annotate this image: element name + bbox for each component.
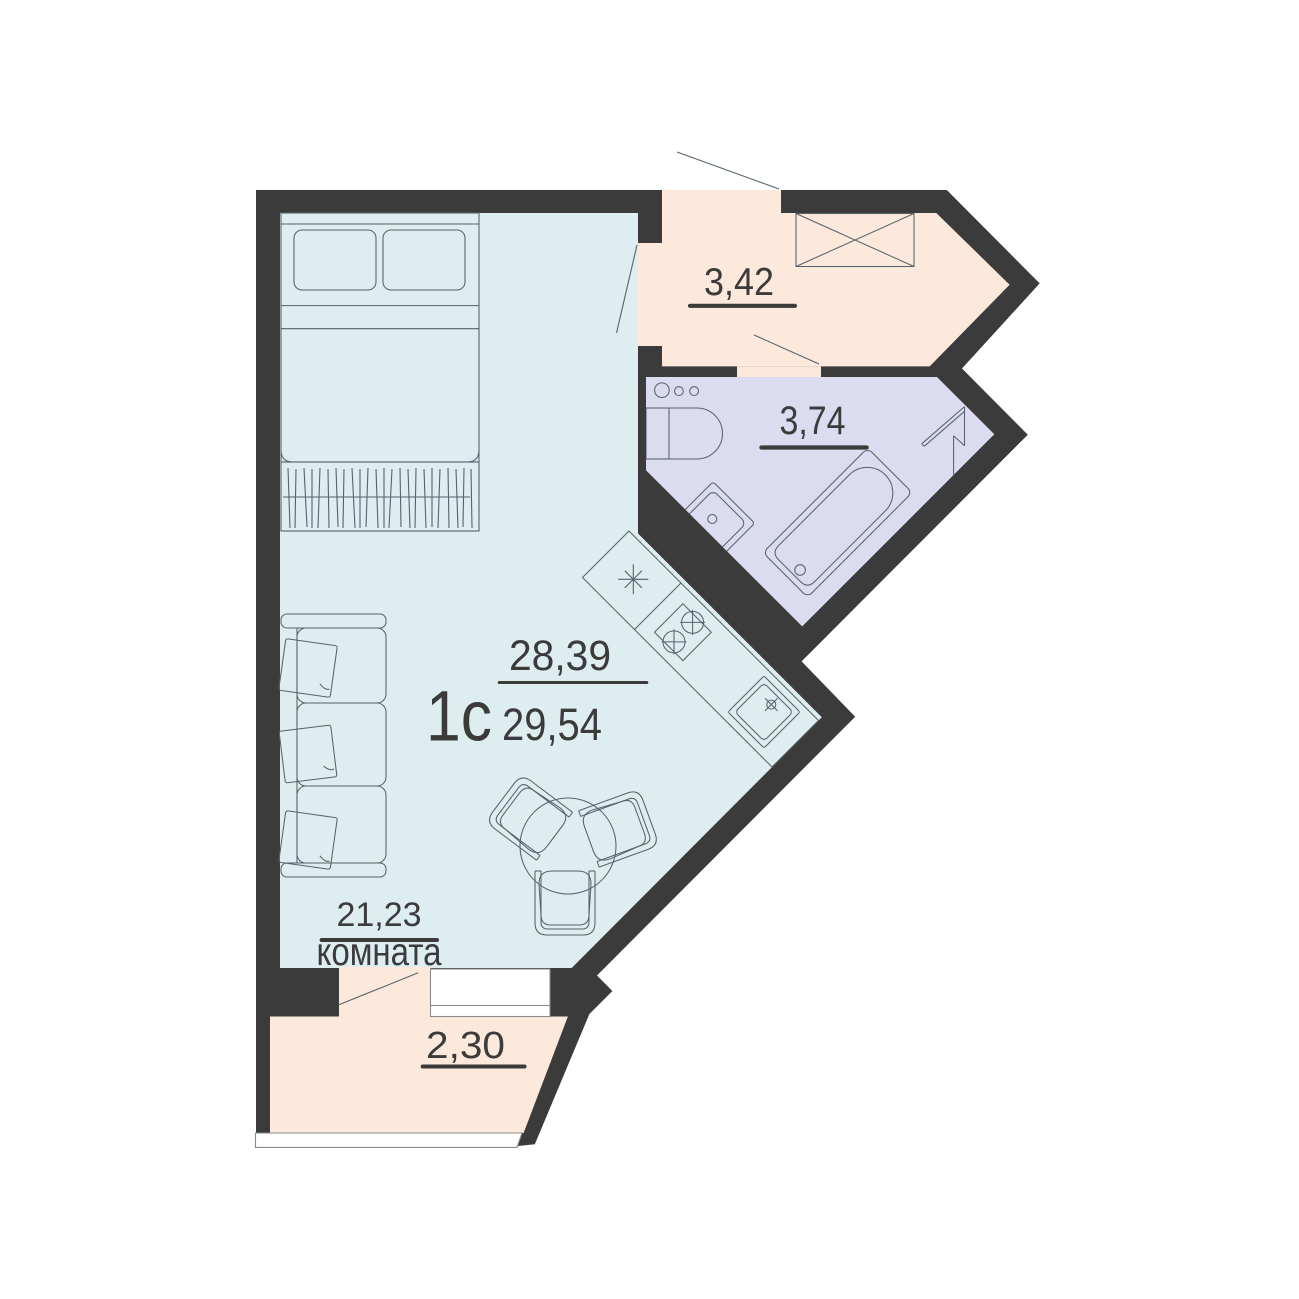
svg-text:21,23: 21,23 <box>337 896 422 934</box>
svg-text:3,74: 3,74 <box>780 399 846 443</box>
svg-text:28,39: 28,39 <box>509 633 611 680</box>
svg-text:29,54: 29,54 <box>502 699 602 750</box>
svg-text:комната: комната <box>317 931 442 974</box>
svg-text:3,42: 3,42 <box>704 261 774 304</box>
svg-text:2,30: 2,30 <box>426 1025 505 1067</box>
svg-text:1с: 1с <box>426 678 492 757</box>
